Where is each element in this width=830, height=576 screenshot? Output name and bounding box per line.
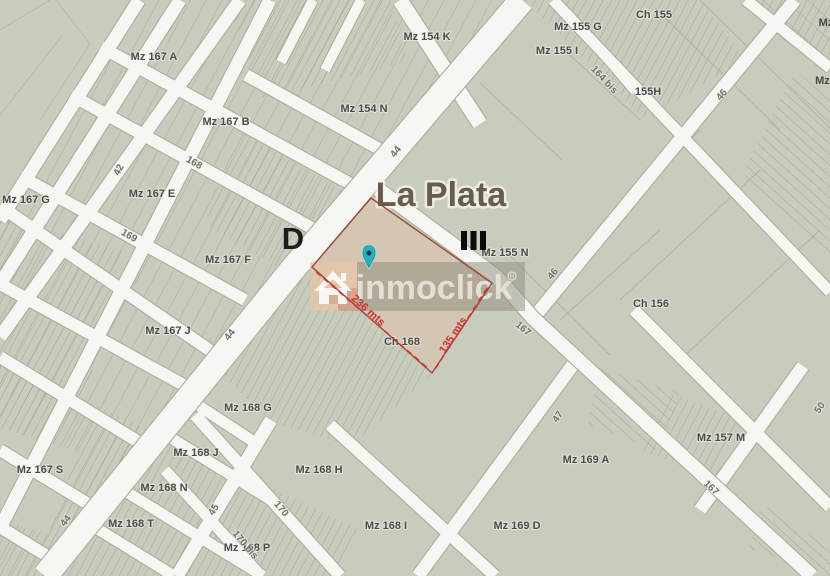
svg-text:Mz 1: Mz 1: [815, 75, 830, 87]
svg-text:Mz 168 T: Mz 168 T: [108, 518, 154, 530]
svg-text:Mz 167 F: Mz 167 F: [205, 254, 251, 266]
svg-text:Mz 157 M: Mz 157 M: [697, 432, 745, 444]
svg-text:Mz 167 A: Mz 167 A: [131, 51, 178, 63]
svg-text:Mz 167 B: Mz 167 B: [202, 116, 249, 128]
svg-text:Mz 168 I: Mz 168 I: [365, 520, 407, 532]
svg-text:Mz 167 E: Mz 167 E: [129, 188, 175, 200]
svg-text:Mz 155 I: Mz 155 I: [536, 45, 578, 57]
svg-text:Mz 168 J: Mz 168 J: [173, 447, 218, 459]
svg-text:Mz 168 N: Mz 168 N: [140, 482, 187, 494]
svg-text:155H: 155H: [635, 86, 661, 98]
svg-text:Mz 167 S: Mz 167 S: [17, 464, 63, 476]
svg-text:La Plata: La Plata: [376, 176, 507, 214]
svg-text:Mz 168 H: Mz 168 H: [295, 464, 342, 476]
svg-text:Mz 169 D: Mz 169 D: [493, 520, 540, 532]
svg-text:Mz 167 J: Mz 167 J: [145, 325, 190, 337]
svg-text:Mz: Mz: [819, 17, 830, 29]
svg-text:Ch 155: Ch 155: [636, 9, 672, 21]
svg-text:Mz 155 G: Mz 155 G: [554, 21, 602, 33]
svg-text:D: D: [282, 221, 304, 256]
svg-text:Mz 167 G: Mz 167 G: [2, 194, 50, 206]
svg-text:R: R: [510, 275, 515, 281]
svg-text:Mz 154 K: Mz 154 K: [403, 31, 450, 43]
svg-text:Mz 154 N: Mz 154 N: [340, 103, 387, 115]
svg-text:Ch 156: Ch 156: [633, 298, 669, 310]
svg-text:Mz 169 A: Mz 169 A: [563, 454, 610, 466]
svg-text:Mz 155 N: Mz 155 N: [481, 247, 528, 259]
svg-text:Mz 168 G: Mz 168 G: [224, 402, 272, 414]
